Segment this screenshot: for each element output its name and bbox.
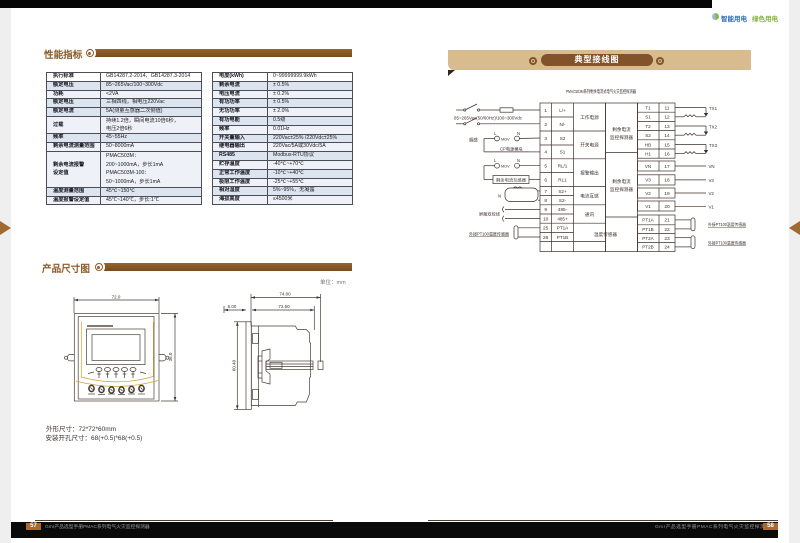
svg-text:PT1B: PT1B [642, 227, 654, 232]
svg-text:23: 23 [664, 236, 670, 242]
svg-text:21: 21 [664, 218, 670, 224]
svg-text:24: 24 [664, 245, 670, 251]
svg-text:S2: S2 [645, 133, 651, 138]
svg-text:16: 16 [664, 152, 670, 158]
svg-text:通讯: 通讯 [585, 211, 595, 218]
svg-text:监控探测器: 监控探测器 [610, 186, 633, 193]
svg-text:V1: V1 [709, 204, 715, 209]
svg-text:N: N [517, 158, 520, 163]
svg-text:VN: VN [709, 164, 715, 169]
svg-text:开关电源: 开关电源 [580, 142, 599, 149]
svg-text:S2-: S2- [559, 198, 567, 203]
svg-text:工作电源: 工作电源 [580, 114, 599, 121]
svg-text:18: 18 [664, 178, 670, 184]
svg-text:PT2A: PT2A [642, 236, 654, 241]
svg-text:11: 11 [665, 106, 670, 112]
svg-text:V3: V3 [645, 178, 651, 183]
svg-text:报警输出: 报警输出 [580, 169, 599, 176]
svg-text:PMAC503M系列剩余电流式电气火灾监控探测器: PMAC503M系列剩余电流式电气火灾监控探测器 [566, 88, 636, 95]
svg-text:TX2: TX2 [709, 125, 718, 130]
svg-text:PT1A: PT1A [642, 218, 654, 223]
svg-text:485+: 485+ [557, 216, 568, 221]
svg-text:85~265Vac(50/60Hz)/100~300Vdc: 85~265Vac(50/60Hz)/100~300Vdc [454, 116, 523, 121]
svg-text:S1: S1 [645, 115, 651, 120]
svg-text:N/-: N/- [559, 122, 566, 127]
svg-text:H1: H1 [645, 152, 651, 157]
svg-text:L/+: L/+ [559, 108, 566, 113]
svg-text:S2+: S2+ [558, 189, 567, 194]
svg-text:T1: T1 [645, 106, 651, 111]
svg-text:10: 10 [543, 216, 549, 222]
svg-text:485-: 485- [558, 207, 568, 212]
svg-text:N: N [498, 194, 501, 199]
svg-text:13: 13 [664, 124, 670, 130]
svg-text:烟感: 烟感 [469, 137, 478, 144]
svg-text:19: 19 [664, 191, 670, 197]
svg-text:剩余电流: 剩余电流 [612, 126, 631, 133]
svg-text:5: 5 [544, 164, 547, 170]
svg-text:屏蔽双绞线: 屏蔽双绞线 [479, 211, 501, 218]
svg-text:TX1: TX1 [709, 106, 718, 111]
svg-text:RL/1: RL/1 [558, 164, 568, 169]
svg-text:V2: V2 [709, 191, 715, 196]
svg-text:PT2B: PT2B [642, 245, 654, 250]
svg-text:8: 8 [544, 198, 547, 204]
svg-text:外接PT100温度传感器: 外接PT100温度传感器 [708, 240, 747, 247]
svg-text:15: 15 [664, 142, 670, 148]
svg-text:外接PT100温度传感器: 外接PT100温度传感器 [708, 221, 747, 228]
svg-text:3: 3 [544, 136, 547, 142]
svg-text:T2: T2 [645, 124, 651, 129]
svg-text:V1: V1 [645, 204, 651, 209]
svg-text:1: 1 [544, 108, 547, 114]
svg-text:2: 2 [544, 122, 547, 128]
svg-text:7: 7 [544, 189, 547, 195]
svg-text:4: 4 [544, 150, 547, 156]
svg-text:S2: S2 [560, 136, 566, 141]
svg-text:电流互感: 电流互感 [580, 192, 599, 199]
svg-text:20: 20 [664, 204, 670, 210]
svg-text:剩余电流互感器: 剩余电流互感器 [496, 177, 526, 183]
svg-text:PT1B: PT1B [557, 235, 569, 240]
svg-text:温度传感器: 温度传感器 [594, 231, 617, 238]
svg-text:MOV: MOV [501, 165, 510, 169]
svg-text:14: 14 [664, 133, 670, 139]
svg-text:L: L [494, 158, 497, 163]
svg-text:22: 22 [664, 227, 670, 233]
svg-text:RL1: RL1 [558, 177, 567, 182]
svg-text:9: 9 [544, 207, 547, 213]
svg-text:12: 12 [664, 115, 670, 121]
svg-text:VN: VN [645, 164, 651, 169]
svg-text:PT1A: PT1A [557, 226, 569, 231]
svg-text:L: L [494, 131, 497, 136]
svg-text:HB: HB [645, 142, 651, 147]
svg-text:6: 6 [544, 177, 547, 183]
svg-text:监控探测器: 监控探测器 [610, 134, 633, 141]
svg-text:TX3: TX3 [709, 143, 718, 148]
svg-text:S1: S1 [560, 150, 566, 155]
svg-text:CP电源模块: CP电源模块 [500, 146, 523, 153]
svg-text:17: 17 [664, 164, 670, 170]
svg-text:外接PT100温度传感器: 外接PT100温度传感器 [469, 231, 510, 238]
svg-text:26: 26 [543, 235, 549, 241]
svg-text:N: N [517, 131, 520, 136]
svg-text:MOV: MOV [501, 137, 510, 141]
svg-text:V3: V3 [709, 178, 715, 183]
svg-text:V2: V2 [645, 191, 651, 196]
svg-text:25: 25 [543, 226, 549, 232]
svg-text:剩余电流: 剩余电流 [612, 178, 631, 185]
